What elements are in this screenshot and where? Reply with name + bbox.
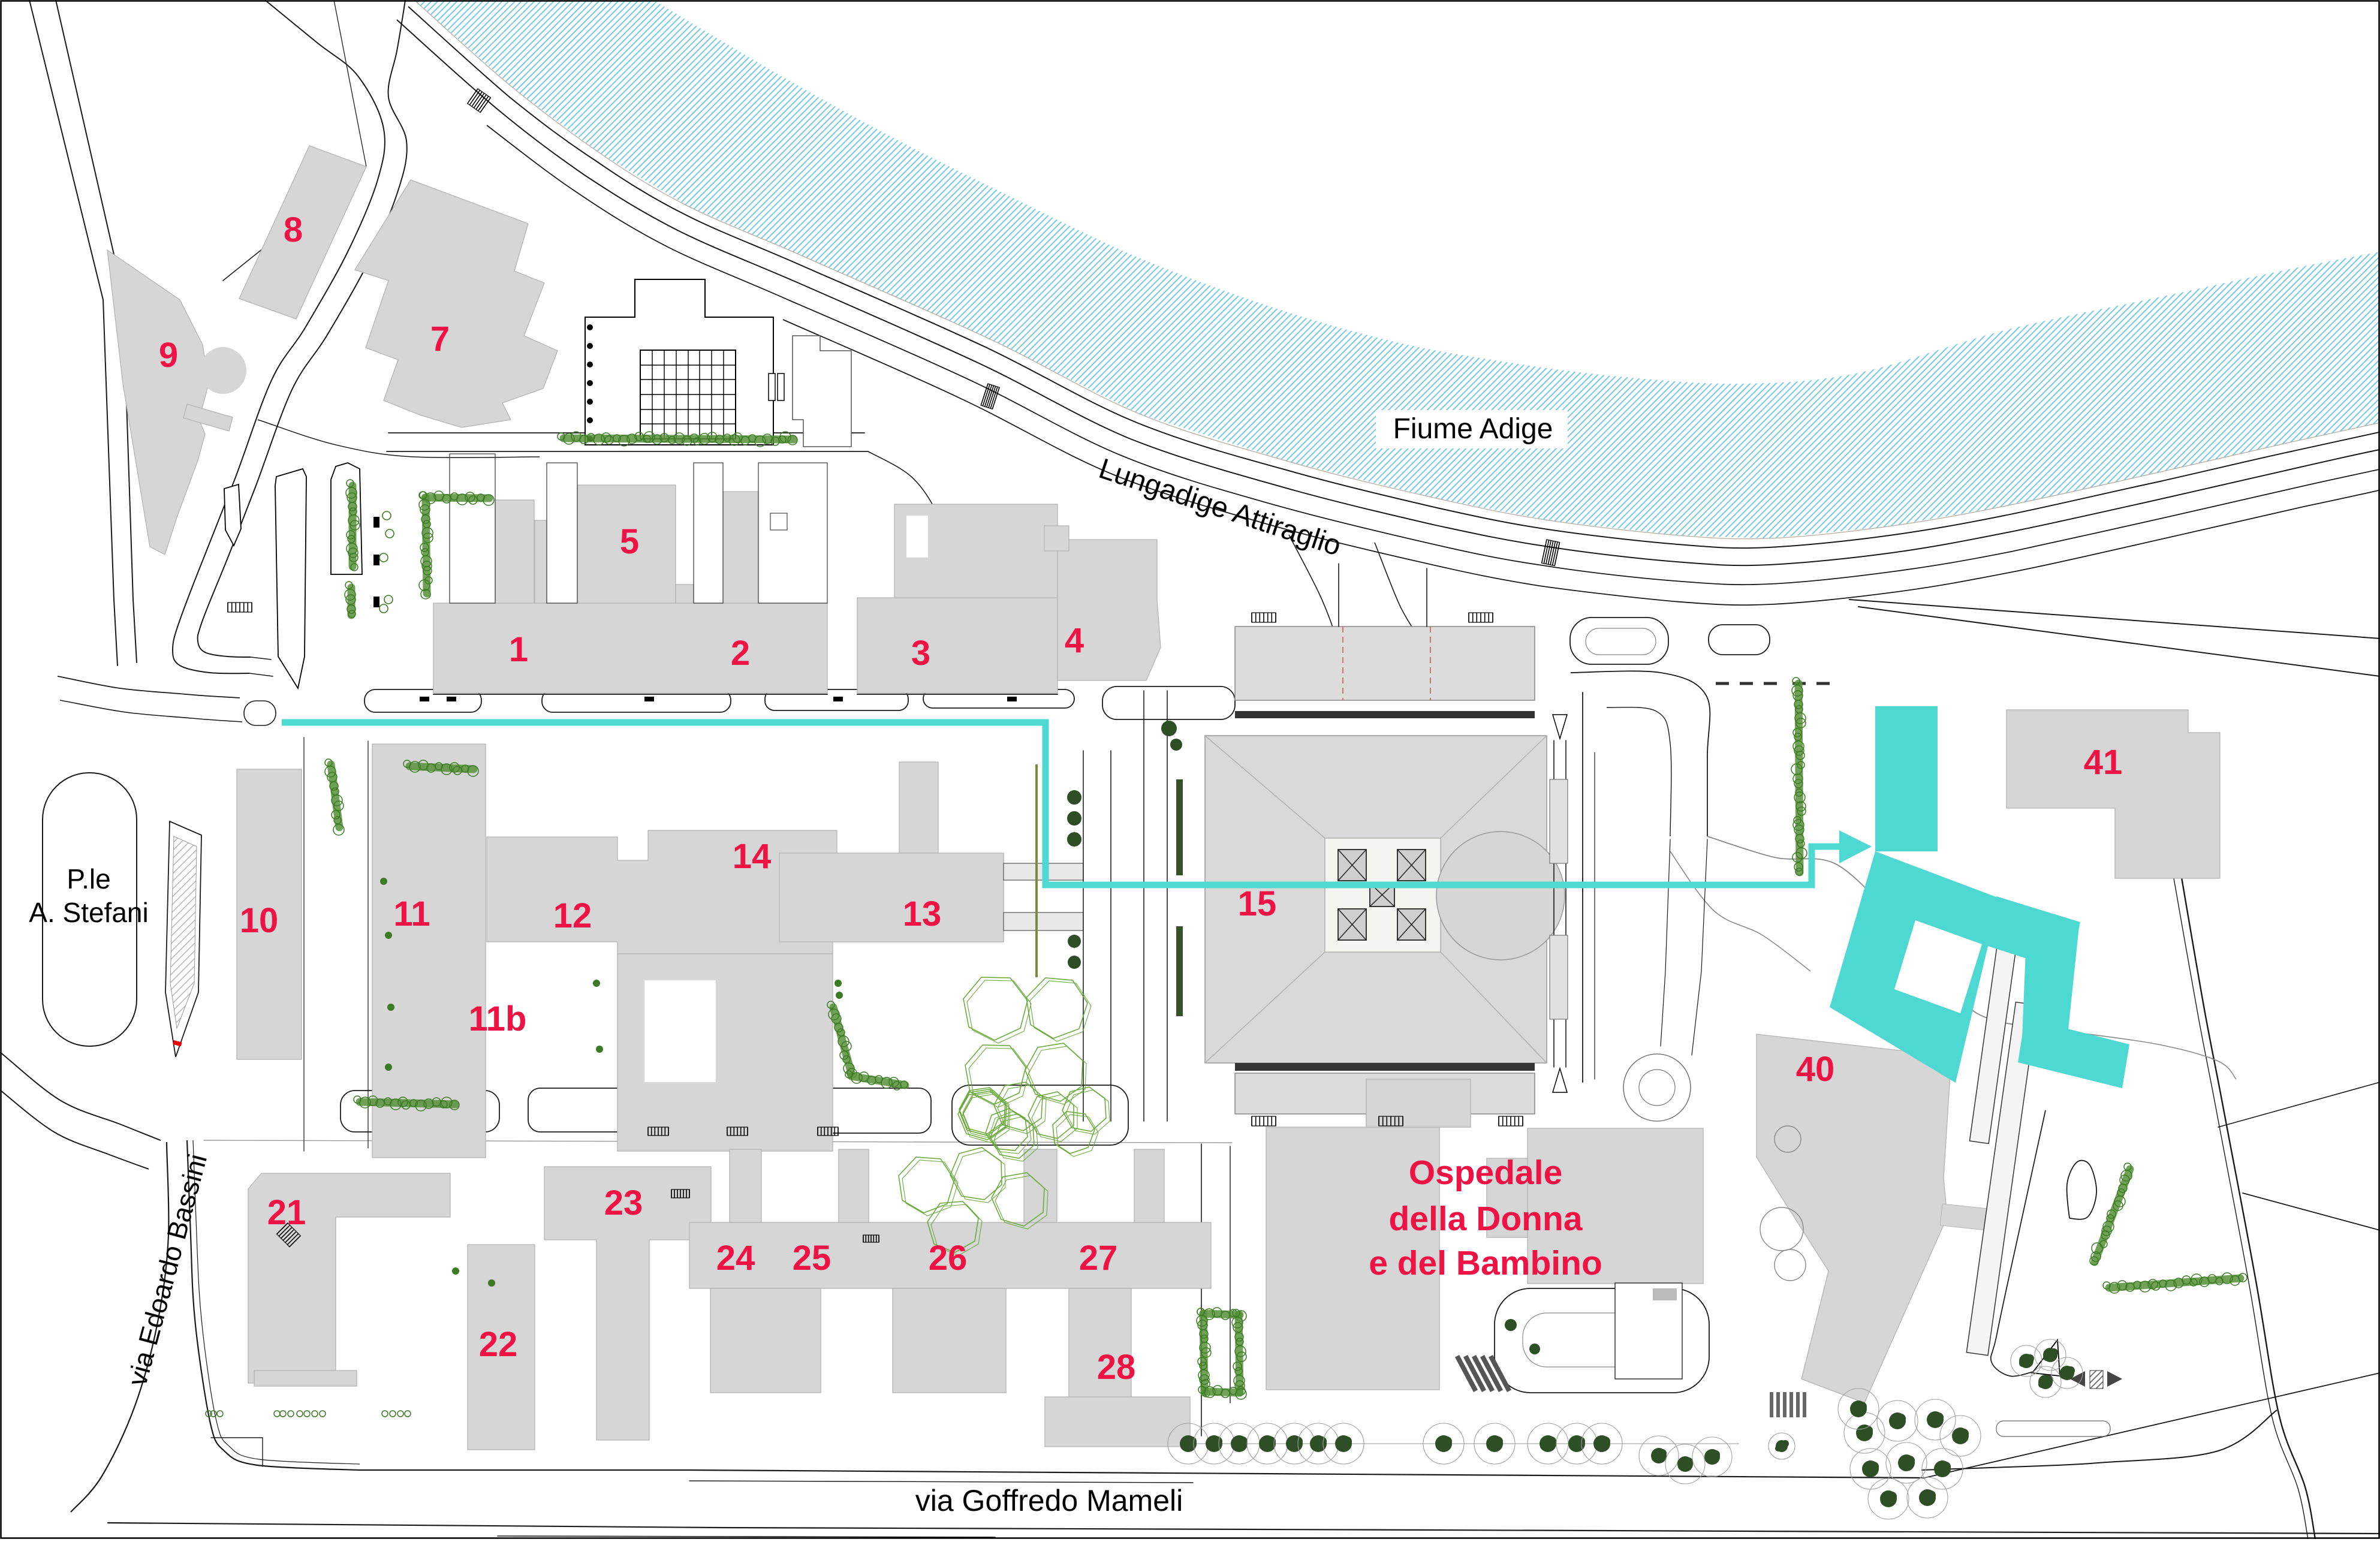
svg-text:10: 10 xyxy=(240,901,279,940)
svg-text:13: 13 xyxy=(903,895,942,933)
svg-text:e del Bambino: e del Bambino xyxy=(1369,1244,1602,1282)
svg-text:12: 12 xyxy=(553,896,592,935)
svg-text:22: 22 xyxy=(479,1325,518,1364)
svg-text:Fiume Adige: Fiume Adige xyxy=(1393,413,1553,445)
svg-text:28: 28 xyxy=(1097,1348,1136,1387)
svg-text:7: 7 xyxy=(430,320,450,359)
svg-text:2: 2 xyxy=(731,634,750,673)
svg-text:26: 26 xyxy=(929,1239,968,1278)
svg-text:23: 23 xyxy=(604,1183,643,1222)
svg-text:11b: 11b xyxy=(469,999,527,1038)
svg-text:3: 3 xyxy=(911,634,930,673)
svg-text:8: 8 xyxy=(284,210,303,249)
svg-text:4: 4 xyxy=(1065,621,1084,660)
svg-text:14: 14 xyxy=(733,837,772,876)
svg-text:27: 27 xyxy=(1079,1239,1118,1278)
svg-text:A. Stefani: A. Stefani xyxy=(29,897,148,928)
svg-text:15: 15 xyxy=(1238,884,1277,923)
svg-text:via Goffredo Mameli: via Goffredo Mameli xyxy=(915,1484,1183,1517)
svg-text:25: 25 xyxy=(793,1239,832,1278)
svg-text:41: 41 xyxy=(2084,743,2123,782)
svg-text:11: 11 xyxy=(393,895,430,933)
svg-text:1: 1 xyxy=(509,630,528,669)
svg-text:P.le: P.le xyxy=(67,863,110,895)
svg-text:24: 24 xyxy=(716,1239,755,1278)
svg-text:40: 40 xyxy=(1796,1050,1835,1089)
svg-text:5: 5 xyxy=(620,522,639,561)
svg-text:21: 21 xyxy=(267,1193,306,1232)
svg-text:della Donna: della Donna xyxy=(1388,1200,1583,1238)
svg-text:9: 9 xyxy=(159,336,178,375)
svg-text:Ospedale: Ospedale xyxy=(1409,1154,1563,1192)
